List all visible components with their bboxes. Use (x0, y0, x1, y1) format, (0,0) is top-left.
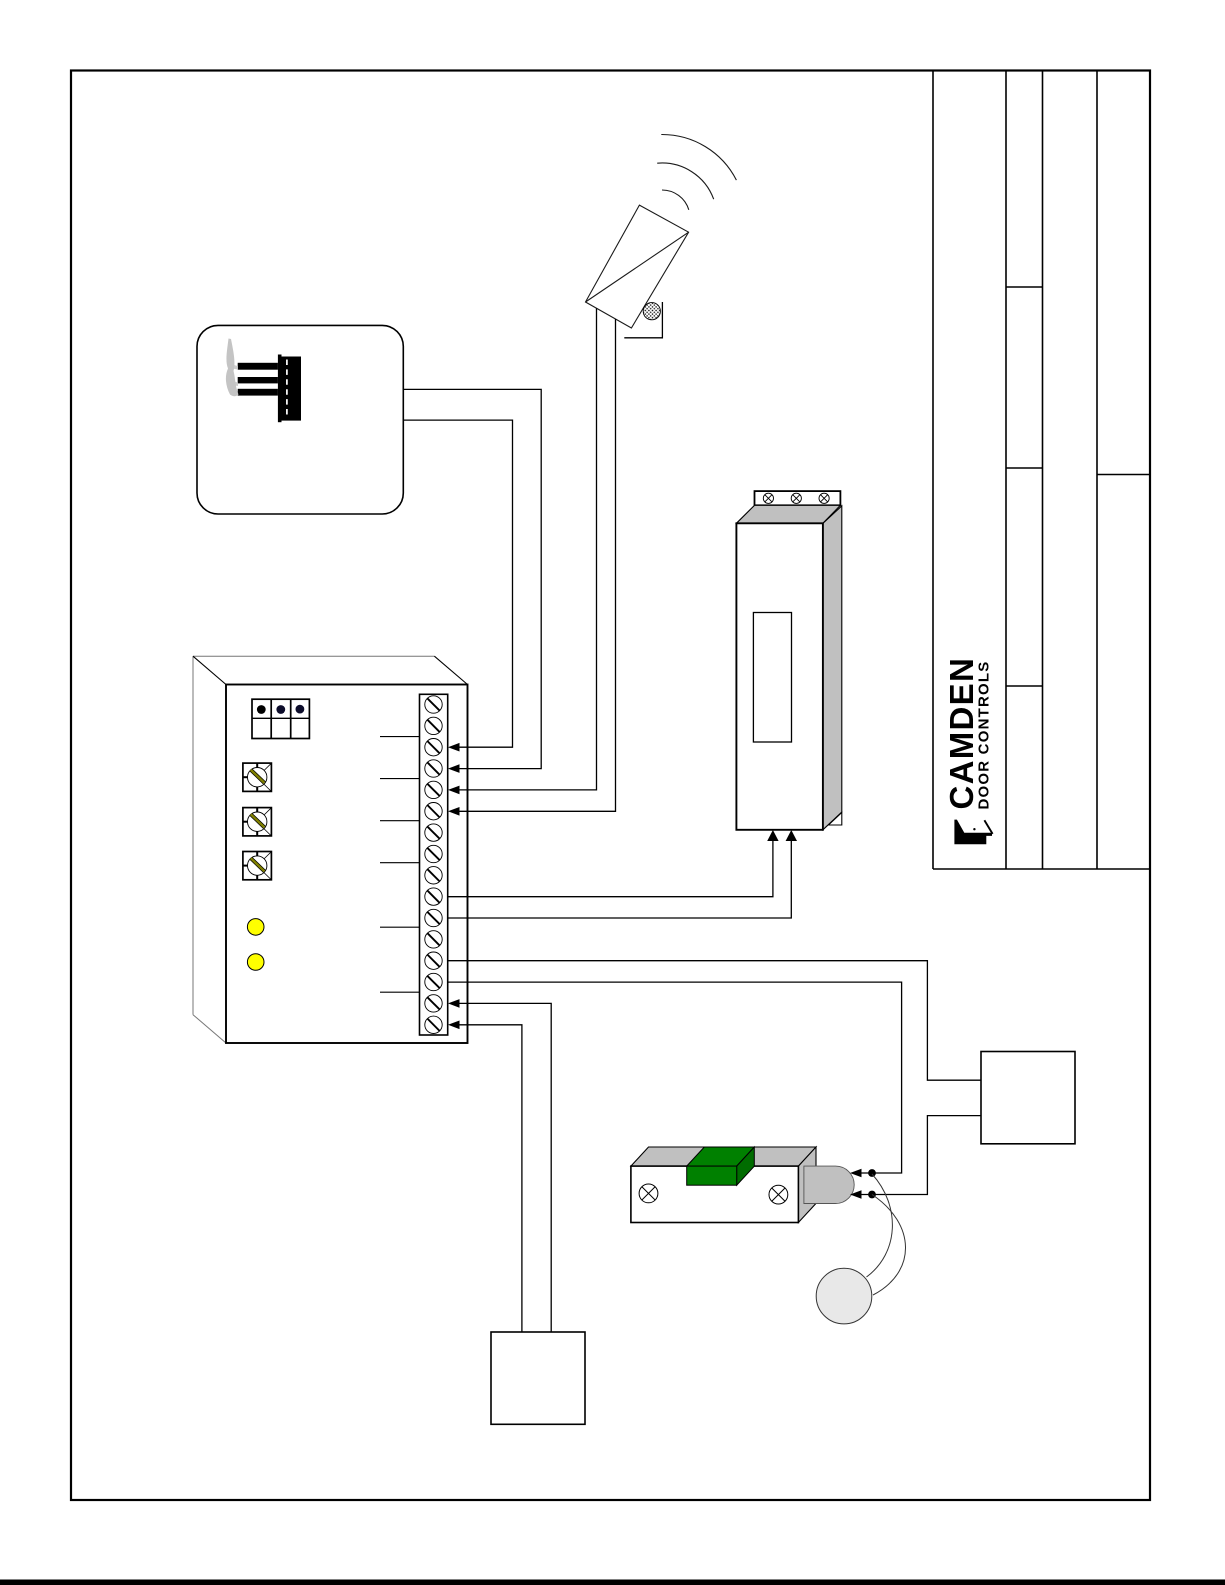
svg-text:CAMDEN: CAMDEN (943, 657, 980, 810)
svg-text:DOOR CONTROLS: DOOR CONTROLS (976, 661, 993, 810)
